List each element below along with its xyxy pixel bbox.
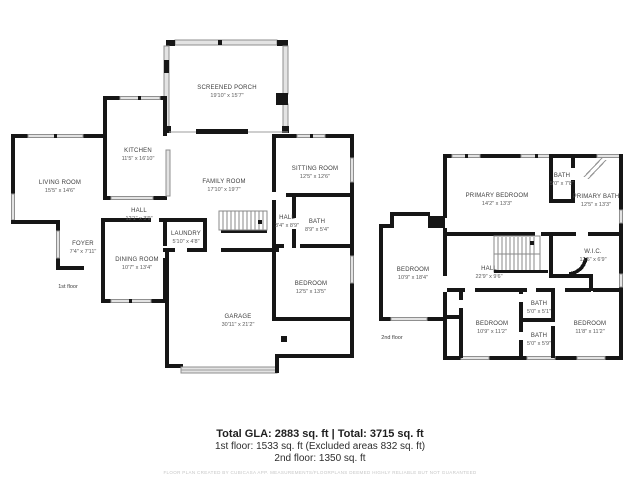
room-dims: 7'4" x 7'11" [70,248,97,255]
room-dims: 5'0" x 5'9" [527,340,551,347]
room-label-bedroom-1f: BEDROOM 12'5" x 13'5" [295,281,327,295]
second-floor-area-text: 2nd floor: 1350 sq. ft [0,453,640,464]
room-name: BATH [527,301,551,309]
room-label-bath-top: BATH 5'0" x 5'1" [527,301,551,315]
room-label-hall-2: HALL 3'4" x 8'9" [275,215,299,229]
room-dims: 17'10" x 19'7" [202,186,245,193]
room-name: BEDROOM [476,321,508,329]
first-floor-area-text: 1st floor: 1533 sq. ft (Excluded areas 8… [0,441,640,452]
room-name: BEDROOM [574,321,606,329]
total-gla-text: Total GLA: 2883 sq. ft | Total: 3715 sq.… [0,428,640,440]
room-name: FAMILY ROOM [202,179,245,187]
room-name: SCREENED PORCH [197,85,256,93]
room-dims: 5'10" x 4'8" [171,238,201,245]
room-dims: 10'9" x 11'2" [476,328,508,335]
room-dims: 10'7" x 13'4" [115,264,159,271]
room-label-screened-porch: SCREENED PORCH 19'10" x 15'7" [197,85,256,99]
room-dims: 15'5" x 14'6" [39,187,81,194]
room-name: PRIMARY BEDROOM [466,193,529,201]
room-dims: 11'8" x 11'2" [574,328,606,335]
room-dims: 12'1" x 3'9" [125,215,152,222]
room-dims: 12'5" x 13'3" [573,201,620,208]
room-label-bath-small: BATH 5'0" x 7'8" [550,173,574,187]
room-label-living-room: LIVING ROOM 15'5" x 14'6" [39,180,81,194]
floor2-caption: 2nd floor [381,335,402,341]
room-label-bath-bottom: BATH 5'0" x 5'9" [527,333,551,347]
disclaimer-text: FLOOR PLAN CREATED BY CUBICASA APP. MEAS… [0,470,640,475]
room-dims: 11'5" x 16'10" [122,155,155,162]
room-name: LAUNDRY [171,231,201,239]
floor1-stairs [219,211,267,230]
room-name: FOYER [70,241,97,249]
room-name: BATH [550,173,574,181]
room-dims: 8'9" x 5'4" [305,226,329,233]
room-name: HALL [125,208,152,216]
room-name: W.I.C. [579,249,606,257]
room-name: LIVING ROOM [39,180,81,188]
room-label-bedroom-right: BEDROOM 11'8" x 11'2" [574,321,606,335]
room-label-bath-1f: BATH 8'9" x 5'4" [305,219,329,233]
floor1-caption: 1st floor [58,284,78,290]
room-name: KITCHEN [122,148,155,156]
room-name: DINING ROOM [115,257,159,265]
room-label-garage: GARAGE 30'11" x 21'2" [222,314,255,328]
room-label-family-room: FAMILY ROOM 17'10" x 19'7" [202,179,245,193]
room-label-laundry: LAUNDRY 5'10" x 4'8" [171,231,201,245]
room-dims: 10'9" x 18'4" [397,274,429,281]
footer: Total GLA: 2883 sq. ft | Total: 3715 sq.… [0,428,640,475]
room-name: SITTING ROOM [292,166,338,174]
room-name: HALL [475,266,502,274]
room-dims: 30'11" x 21'2" [222,321,255,328]
room-label-primary-bath: PRIMARY BATH 12'5" x 13'3" [573,194,620,208]
room-dims: 5'0" x 5'1" [527,308,551,315]
room-name: BEDROOM [295,281,327,289]
room-name: BEDROOM [397,267,429,275]
floor-plan-page: SCREENED PORCH 19'10" x 15'7" KITCHEN 11… [0,0,640,480]
room-label-kitchen: KITCHEN 11'5" x 16'10" [122,148,155,162]
room-label-primary-bedroom: PRIMARY BEDROOM 14'2" x 13'3" [466,193,529,207]
room-label-hall-1: HALL 12'1" x 3'9" [125,208,152,222]
room-dims: 5'0" x 7'8" [550,180,574,187]
room-dims: 12'5" x 13'5" [295,288,327,295]
room-name: PRIMARY BATH [573,194,620,202]
room-name: BATH [527,333,551,341]
room-label-wic: W.I.C. 12'5" x 6'9" [579,249,606,263]
room-label-hall-2f: HALL 22'9" x 9'6" [475,266,502,280]
room-dims: 14'2" x 13'3" [466,200,529,207]
room-dims: 22'9" x 9'6" [475,273,502,280]
room-dims: 19'10" x 15'7" [197,92,256,99]
room-label-sitting-room: SITTING ROOM 12'5" x 12'6" [292,166,338,180]
room-name: HALL [275,215,299,223]
room-dims: 12'5" x 6'9" [579,256,606,263]
room-name: GARAGE [222,314,255,322]
room-label-foyer: FOYER 7'4" x 7'11" [70,241,97,255]
room-label-bedroom-mid: BEDROOM 10'9" x 11'2" [476,321,508,335]
room-name: BATH [305,219,329,227]
room-label-dining-room: DINING ROOM 10'7" x 13'4" [115,257,159,271]
room-dims: 3'4" x 8'9" [275,222,299,229]
room-dims: 12'5" x 12'6" [292,173,338,180]
room-label-bedroom-left: BEDROOM 10'9" x 18'4" [397,267,429,281]
